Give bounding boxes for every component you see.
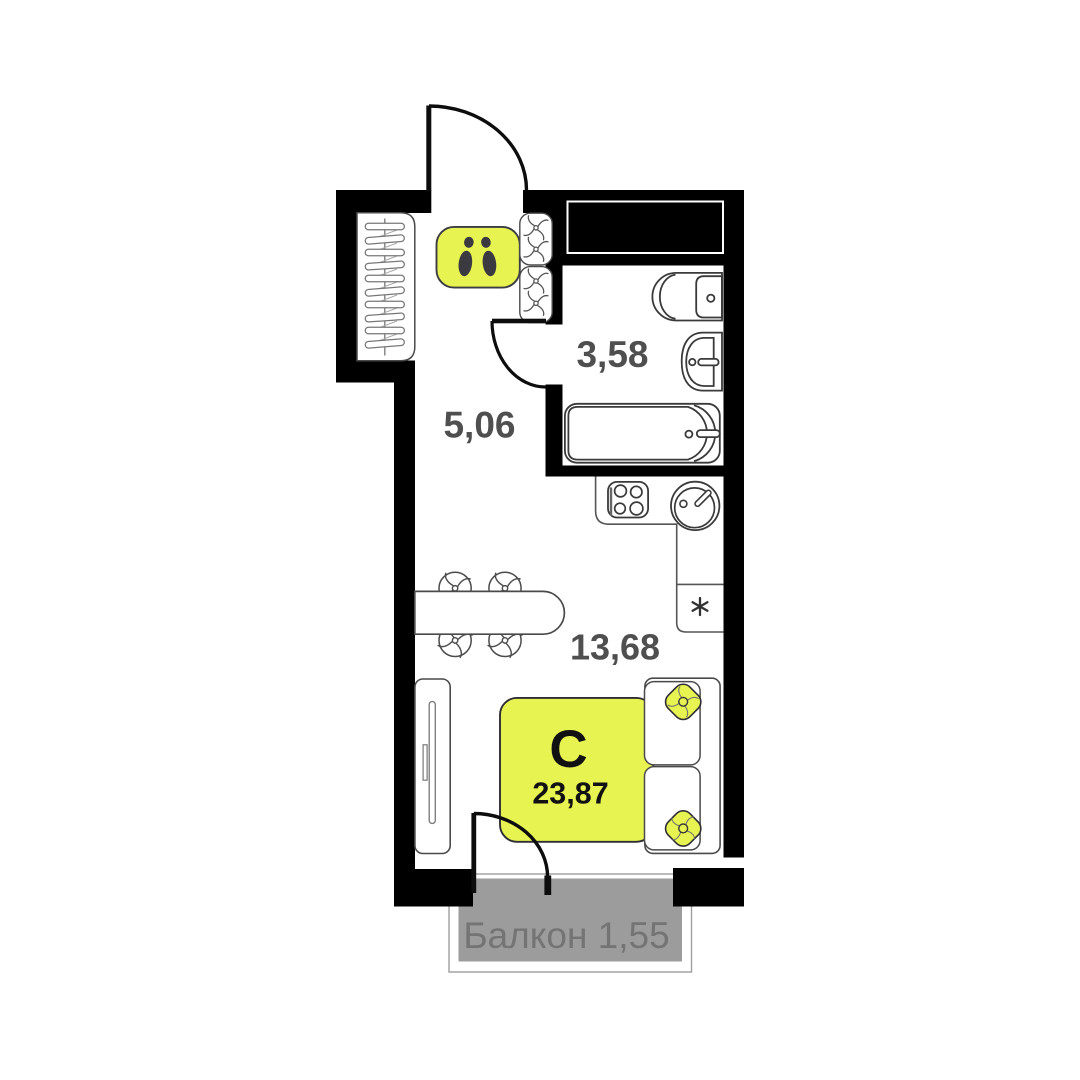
- svg-text:13,68: 13,68: [570, 627, 660, 668]
- svg-text:3,58: 3,58: [576, 334, 648, 375]
- svg-text:С: С: [549, 720, 587, 779]
- svg-text:Балкон 1,55: Балкон 1,55: [463, 915, 669, 956]
- svg-text:23,87: 23,87: [532, 777, 608, 811]
- svg-text:5,06: 5,06: [443, 405, 515, 446]
